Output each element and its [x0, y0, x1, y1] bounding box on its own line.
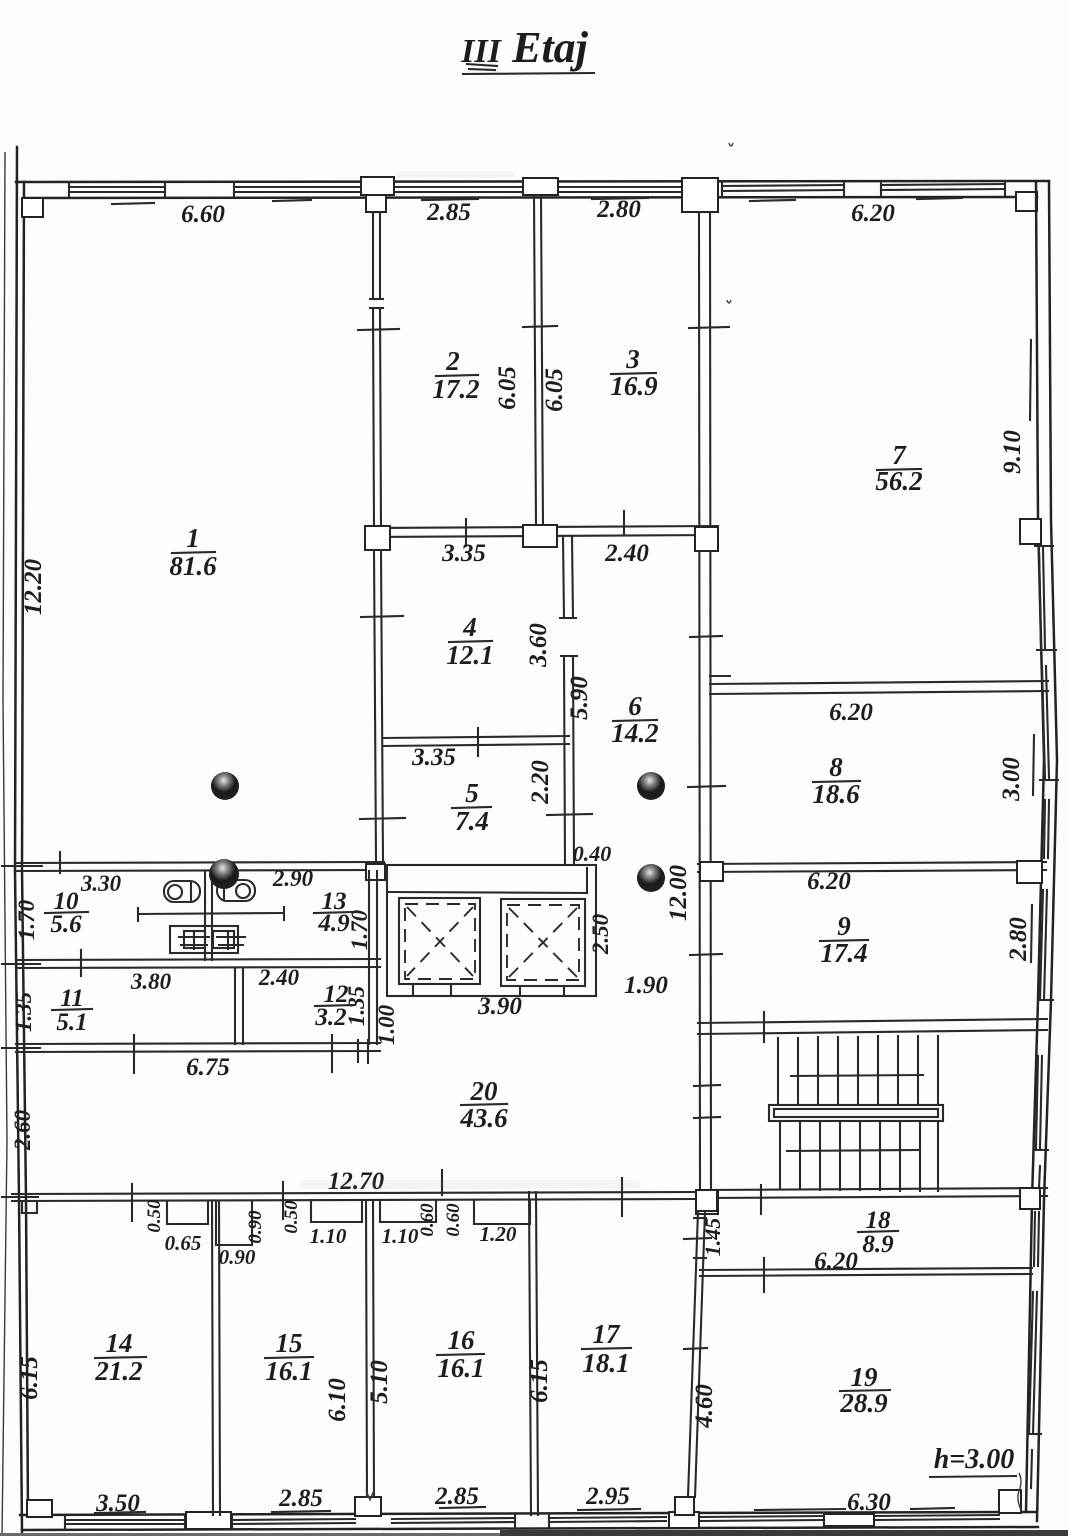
svg-text:2.60: 2.60	[10, 1109, 35, 1151]
svg-text:3.90: 3.90	[477, 993, 522, 1020]
svg-text:9: 9	[837, 911, 851, 941]
svg-text:8: 8	[829, 752, 843, 782]
svg-text:3.80: 3.80	[130, 969, 172, 994]
svg-text:6.10: 6.10	[324, 1378, 351, 1422]
svg-text:1.45: 1.45	[700, 1218, 725, 1257]
svg-text:1.70: 1.70	[347, 909, 372, 950]
svg-text:Etaj: Etaj	[511, 23, 589, 72]
svg-text:9.10: 9.10	[999, 430, 1026, 474]
svg-text:12.00: 12.00	[665, 864, 692, 921]
svg-text:0.50: 0.50	[281, 1200, 302, 1234]
svg-text:0.60: 0.60	[417, 1203, 438, 1237]
svg-text:5.10: 5.10	[366, 1360, 393, 1404]
svg-text:16.1: 16.1	[437, 1353, 484, 1383]
svg-text:h=3.00: h=3.00	[934, 1444, 1015, 1475]
svg-text:81.6: 81.6	[169, 551, 217, 581]
svg-text:6.20: 6.20	[807, 868, 851, 895]
svg-text:5.90: 5.90	[566, 676, 593, 720]
svg-text:6.60: 6.60	[181, 201, 225, 228]
svg-text:2: 2	[445, 346, 460, 376]
svg-text:6.20: 6.20	[814, 1248, 858, 1275]
svg-text:2.85: 2.85	[434, 1483, 479, 1510]
svg-text:1.00: 1.00	[374, 1004, 399, 1045]
svg-text:8.9: 8.9	[862, 1231, 894, 1258]
svg-text:18.6: 18.6	[812, 779, 860, 809]
svg-text:0.60: 0.60	[443, 1203, 464, 1237]
svg-text:5.1: 5.1	[56, 1009, 87, 1036]
svg-text:3.35: 3.35	[411, 744, 456, 771]
svg-text:6.75: 6.75	[186, 1054, 230, 1081]
svg-text:2.40: 2.40	[604, 540, 649, 567]
svg-text:2.90: 2.90	[272, 866, 314, 891]
svg-text:6.05: 6.05	[494, 366, 521, 410]
svg-text:4.9: 4.9	[317, 910, 350, 937]
svg-text:17.4: 17.4	[820, 938, 867, 968]
svg-text:6.05: 6.05	[541, 368, 568, 412]
svg-text:2.80: 2.80	[1005, 917, 1032, 962]
svg-text:1.20: 1.20	[480, 1222, 517, 1246]
svg-text:2.80: 2.80	[596, 196, 641, 223]
svg-text:7.4: 7.4	[455, 806, 489, 836]
svg-text:16: 16	[448, 1325, 476, 1355]
svg-text:6.20: 6.20	[829, 699, 873, 726]
svg-text:2.50: 2.50	[588, 913, 613, 955]
svg-text:3.50: 3.50	[95, 1490, 140, 1517]
svg-text:6.15: 6.15	[16, 1356, 43, 1400]
svg-text:0.65: 0.65	[165, 1231, 202, 1255]
svg-text:1.70: 1.70	[14, 899, 39, 940]
svg-text:0.90: 0.90	[219, 1245, 256, 1269]
svg-text:1.10: 1.10	[310, 1224, 347, 1248]
svg-text:2.85: 2.85	[278, 1485, 323, 1512]
svg-text:15: 15	[276, 1328, 303, 1358]
svg-text:2.95: 2.95	[585, 1483, 630, 1510]
svg-text:6.20: 6.20	[851, 200, 895, 227]
svg-text:20: 20	[470, 1076, 499, 1106]
svg-text:12.20: 12.20	[20, 558, 47, 615]
svg-text:16.1: 16.1	[265, 1356, 312, 1386]
svg-text:2.40: 2.40	[258, 965, 300, 990]
svg-text:43.6: 43.6	[459, 1103, 508, 1133]
svg-text:56.2: 56.2	[875, 466, 922, 496]
svg-text:6: 6	[628, 691, 642, 721]
svg-text:28.9: 28.9	[839, 1388, 888, 1418]
svg-text:0.50: 0.50	[144, 1199, 165, 1233]
svg-text:21.2: 21.2	[94, 1356, 142, 1386]
svg-text:6.15: 6.15	[526, 1359, 553, 1403]
svg-text:17: 17	[593, 1319, 622, 1349]
svg-text:3.60: 3.60	[525, 623, 552, 668]
svg-text:2.20: 2.20	[527, 760, 554, 805]
svg-text:0.90: 0.90	[245, 1210, 266, 1244]
svg-text:11: 11	[60, 985, 84, 1012]
svg-text:14.2: 14.2	[611, 718, 658, 748]
svg-text:4: 4	[462, 612, 477, 642]
svg-text:3.35: 3.35	[441, 540, 486, 567]
svg-text:0.40: 0.40	[573, 841, 612, 866]
svg-text:6.30: 6.30	[847, 1489, 891, 1516]
svg-text:3.30: 3.30	[80, 871, 122, 896]
svg-text:2.85: 2.85	[426, 199, 471, 226]
svg-text:3: 3	[625, 344, 640, 374]
svg-text:1.35: 1.35	[11, 992, 36, 1032]
svg-text:18: 18	[866, 1207, 892, 1234]
svg-text:14: 14	[106, 1328, 133, 1358]
svg-text:17.2: 17.2	[432, 374, 479, 404]
svg-text:12.1: 12.1	[446, 640, 493, 670]
svg-text:5: 5	[465, 778, 479, 808]
svg-text:1: 1	[186, 523, 200, 553]
svg-text:18.1: 18.1	[582, 1348, 629, 1378]
svg-text:3.2: 3.2	[314, 1004, 346, 1031]
svg-text:16.9: 16.9	[610, 371, 658, 401]
svg-text:4.60: 4.60	[691, 1384, 718, 1429]
svg-text:1.90: 1.90	[624, 972, 668, 999]
svg-text:5.6: 5.6	[50, 911, 82, 938]
svg-text:1.10: 1.10	[382, 1224, 419, 1248]
svg-text:3.00: 3.00	[998, 757, 1025, 802]
